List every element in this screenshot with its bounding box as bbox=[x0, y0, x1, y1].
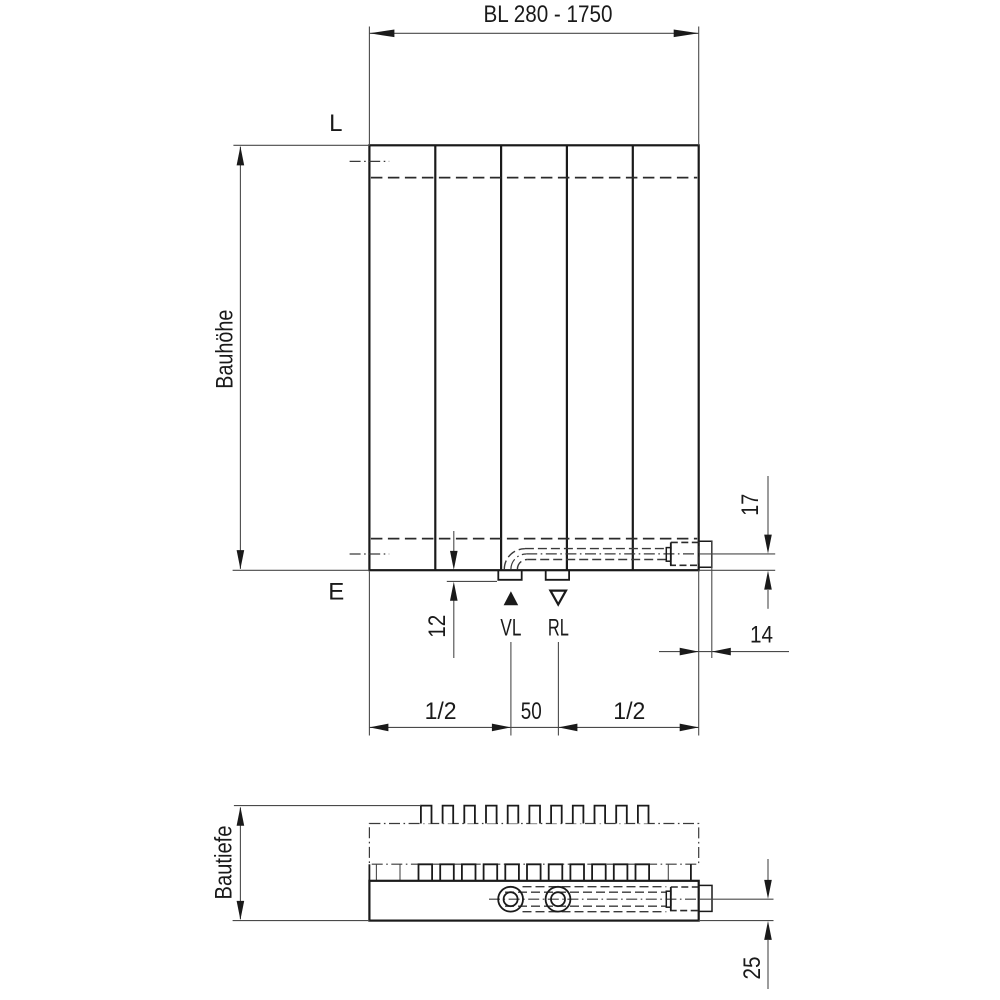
svg-text:1/2: 1/2 bbox=[613, 698, 645, 725]
svg-text:25: 25 bbox=[739, 957, 766, 980]
svg-text:14: 14 bbox=[750, 621, 773, 648]
svg-text:Bautiefe: Bautiefe bbox=[211, 826, 238, 900]
svg-text:Bauhöhe: Bauhöhe bbox=[212, 310, 239, 389]
svg-text:E: E bbox=[328, 578, 344, 605]
svg-text:VL: VL bbox=[500, 614, 521, 641]
svg-text:17: 17 bbox=[737, 494, 764, 516]
svg-text:BL 280 - 1750: BL 280 - 1750 bbox=[484, 1, 613, 28]
svg-text:RL: RL bbox=[548, 614, 569, 641]
svg-text:L: L bbox=[329, 110, 342, 137]
svg-text:12: 12 bbox=[424, 615, 451, 638]
svg-text:1/2: 1/2 bbox=[425, 698, 457, 725]
svg-text:50: 50 bbox=[521, 698, 542, 725]
